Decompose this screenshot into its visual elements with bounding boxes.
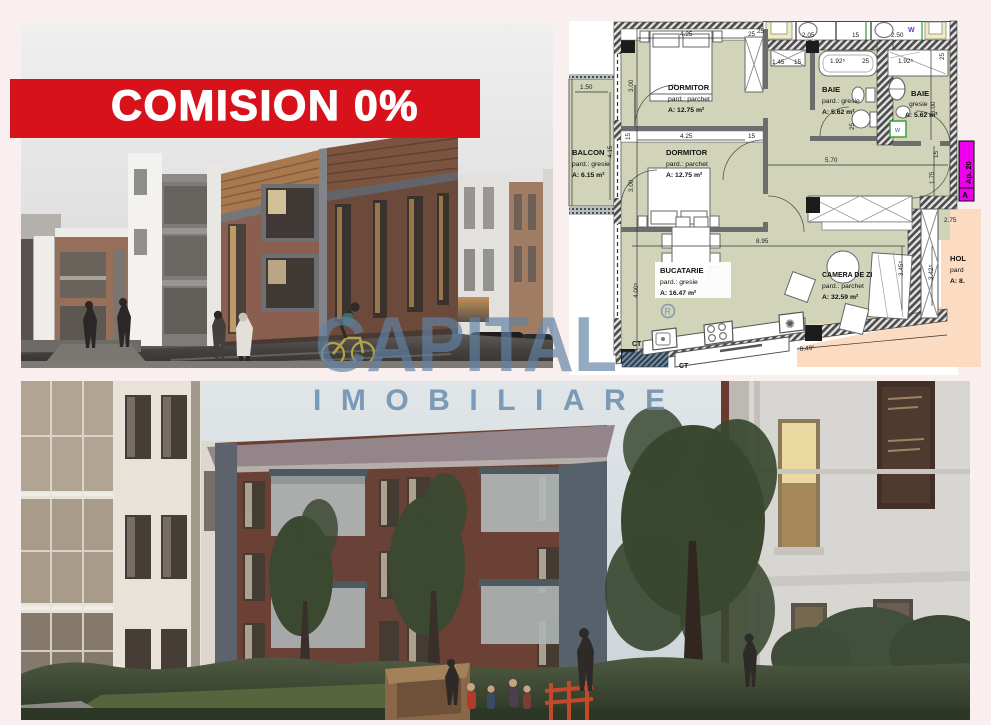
svg-text:4.00⁵: 4.00⁵ (633, 283, 640, 298)
svg-text:A: 12.75 m²: A: 12.75 m² (666, 172, 703, 179)
svg-text:pard.: parchet: pard.: parchet (668, 96, 710, 103)
svg-text:CT: CT (679, 363, 689, 370)
svg-text:A: 32.59 m²: A: 32.59 m² (822, 294, 859, 301)
svg-text:✺: ✺ (785, 317, 795, 331)
svg-text:BUCATARIE: BUCATARIE (660, 266, 704, 275)
svg-text:15: 15 (748, 133, 756, 140)
svg-text:25: 25 (939, 52, 946, 60)
svg-text:15: 15 (852, 32, 860, 39)
svg-text:BAIE: BAIE (822, 85, 840, 94)
svg-text:A: 16.47 m²: A: 16.47 m² (660, 290, 697, 297)
svg-text:1.75: 1.75 (929, 171, 936, 184)
svg-text:CT: CT (632, 341, 642, 348)
svg-text:25: 25 (757, 28, 765, 35)
svg-text:2.75: 2.75 (944, 217, 957, 224)
svg-text:DORMITOR: DORMITOR (668, 83, 710, 92)
svg-text:BAIE: BAIE (911, 89, 929, 98)
svg-text:3.00: 3.00 (628, 179, 635, 192)
svg-text:1.45: 1.45 (772, 59, 785, 66)
svg-text:pard.: parchet: pard.: parchet (822, 283, 864, 290)
svg-text:Ap. 20: Ap. 20 (964, 161, 973, 184)
svg-text:pard: pard (950, 267, 964, 274)
svg-text:4.25: 4.25 (680, 133, 693, 140)
svg-text:5.70: 5.70 (825, 157, 838, 164)
svg-text:25: 25 (748, 31, 756, 38)
svg-text:CAMERA DE ZI: CAMERA DE ZI (822, 272, 872, 279)
svg-text:A: 6.15 m²: A: 6.15 m² (572, 172, 605, 179)
svg-text:pard.: gresie: pard.: gresie (660, 279, 698, 286)
svg-text:HOL: HOL (950, 254, 966, 263)
svg-text:2.50: 2.50 (891, 32, 904, 39)
svg-text:25: 25 (862, 58, 870, 65)
svg-text:15: 15 (794, 59, 802, 66)
svg-text:15: 15 (933, 150, 940, 158)
svg-text:A: 8.: A: 8. (950, 278, 965, 285)
svg-text:gresie: gresie (909, 101, 928, 108)
svg-text:R: R (665, 307, 672, 317)
svg-text:4.25: 4.25 (680, 31, 693, 38)
svg-text:pard.: gresie: pard.: gresie (822, 98, 860, 105)
svg-text:pard.: parchet: pard.: parchet (666, 161, 708, 168)
svg-text:A: 5.62 m²: A: 5.62 m² (905, 112, 938, 119)
svg-text:w: w (894, 127, 901, 134)
svg-text:1.92⁵: 1.92⁵ (830, 58, 845, 65)
svg-text:8.95: 8.95 (756, 238, 769, 245)
svg-text:15: 15 (625, 132, 632, 140)
svg-text:3.42⁵: 3.42⁵ (928, 265, 935, 280)
svg-text:3.00: 3.00 (628, 79, 635, 92)
svg-text:2.05: 2.05 (802, 32, 815, 39)
svg-text:1.50: 1.50 (580, 84, 593, 91)
svg-text:A: 5.62 m²: A: 5.62 m² (822, 109, 855, 116)
svg-text:1.92⁵: 1.92⁵ (898, 58, 913, 65)
svg-text:DORMITOR: DORMITOR (666, 148, 708, 157)
svg-text:A: A (962, 190, 968, 200)
svg-text:W: W (908, 27, 915, 34)
svg-text:25: 25 (849, 122, 856, 130)
svg-text:A: 12.75 m²: A: 12.75 m² (668, 107, 705, 114)
svg-text:pard.: gresie: pard.: gresie (572, 161, 610, 168)
svg-text:8.49⁵: 8.49⁵ (800, 345, 816, 353)
svg-text:4.15: 4.15 (607, 145, 614, 158)
svg-text:3.45⁵: 3.45⁵ (898, 261, 905, 276)
svg-text:BALCON: BALCON (572, 148, 604, 157)
